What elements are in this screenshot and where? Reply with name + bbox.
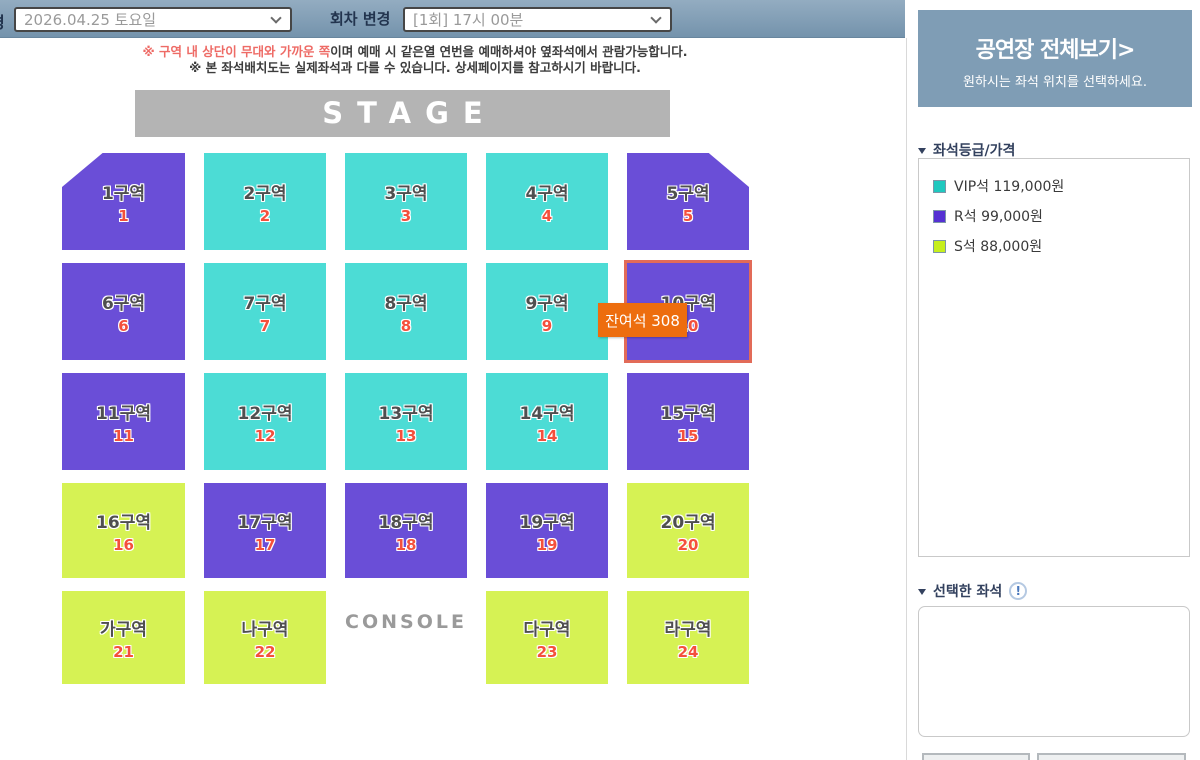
section-label: 나구역 bbox=[242, 615, 289, 640]
section-label: 라구역 bbox=[665, 615, 712, 640]
round-select-value: [1회] 17시 00분 bbox=[413, 9, 523, 30]
round-select[interactable]: [1회] 17시 00분 bbox=[403, 7, 672, 32]
seat-section-5[interactable]: 5구역5 bbox=[627, 153, 749, 250]
section-number: 5 bbox=[683, 207, 693, 225]
section-label: 가구역 bbox=[100, 615, 147, 640]
triangle-down-icon bbox=[918, 148, 926, 154]
venue-overview-subtitle: 원하시는 좌석 위치를 선택하세요. bbox=[918, 71, 1192, 90]
triangle-down-icon bbox=[918, 589, 926, 595]
section-label: 17구역 bbox=[238, 508, 293, 533]
bottom-button-left[interactable] bbox=[922, 753, 1030, 760]
seat-section-7[interactable]: 7구역7 bbox=[204, 263, 326, 360]
section-label: 5구역 bbox=[666, 179, 709, 204]
section-label: 14구역 bbox=[520, 399, 575, 424]
legend-text-r: R석 99,000원 bbox=[954, 206, 1043, 226]
seat-section-9[interactable]: 9구역9 bbox=[486, 263, 608, 360]
section-number: 2 bbox=[260, 207, 270, 225]
section-label: 16구역 bbox=[96, 508, 151, 533]
section-number: 18 bbox=[396, 536, 417, 554]
legend-item-vip: VIP석 119,000원 bbox=[933, 176, 1189, 196]
console-label: CONSOLE bbox=[345, 591, 467, 684]
seat-section-1[interactable]: 1구역1 bbox=[62, 153, 185, 250]
notice-line-1-highlight: ※ 구역 내 상단이 무대와 가까운 쪽 bbox=[143, 44, 331, 59]
chevron-down-icon bbox=[270, 12, 281, 23]
remaining-seats-tooltip: 잔여석 308 bbox=[598, 303, 687, 337]
section-number: 17 bbox=[255, 536, 276, 554]
section-label: 18구역 bbox=[379, 508, 434, 533]
chevron-down-icon bbox=[650, 12, 661, 23]
section-number: 9 bbox=[542, 317, 552, 335]
seat-section-23[interactable]: 다구역23 bbox=[486, 591, 608, 684]
section-number: 23 bbox=[537, 643, 558, 661]
section-label: 1구역 bbox=[102, 179, 145, 204]
section-label: 19구역 bbox=[520, 508, 575, 533]
legend-item-r: R석 99,000원 bbox=[933, 206, 1189, 226]
section-number: 14 bbox=[537, 427, 558, 445]
seat-section-14[interactable]: 14구역14 bbox=[486, 373, 608, 470]
legend-text-s: S석 88,000원 bbox=[954, 236, 1042, 256]
section-number: 7 bbox=[260, 317, 270, 335]
section-number: 19 bbox=[537, 536, 558, 554]
venue-overview-button[interactable]: 공연장 전체보기> 원하시는 좌석 위치를 선택하세요. bbox=[918, 10, 1192, 107]
selected-seats-header[interactable]: 선택한 좌석 ! bbox=[918, 581, 1027, 601]
notice-block: ※ 구역 내 상단이 무대와 가까운 쪽이며 예매 시 같은열 연번을 예매하셔… bbox=[0, 44, 830, 76]
seat-section-19[interactable]: 19구역19 bbox=[486, 483, 608, 578]
header-bar: 경 2026.04.25 토요일 회차 변경 [1회] 17시 00분 bbox=[0, 0, 905, 38]
section-number: 20 bbox=[678, 536, 699, 554]
seat-grid: CONSOLE 1구역12구역23구역34구역45구역56구역67구역78구역8… bbox=[62, 153, 749, 684]
section-label: 20구역 bbox=[661, 508, 716, 533]
section-label: 4구역 bbox=[525, 179, 568, 204]
date-select-value: 2026.04.25 토요일 bbox=[24, 9, 156, 30]
section-number: 12 bbox=[255, 427, 276, 445]
info-icon[interactable]: ! bbox=[1009, 582, 1027, 600]
section-number: 6 bbox=[118, 317, 128, 335]
seat-section-12[interactable]: 12구역12 bbox=[204, 373, 326, 470]
seat-section-16[interactable]: 16구역16 bbox=[62, 483, 185, 578]
seat-section-22[interactable]: 나구역22 bbox=[204, 591, 326, 684]
stage-banner: STAGE bbox=[135, 90, 670, 137]
legend-text-vip: VIP석 119,000원 bbox=[954, 176, 1064, 196]
selected-seats-box bbox=[918, 606, 1190, 737]
sidebar: 공연장 전체보기> 원하시는 좌석 위치를 선택하세요. 좌석등급/가격 VIP… bbox=[918, 0, 1192, 760]
section-label: 6구역 bbox=[102, 289, 145, 314]
section-label: 2구역 bbox=[243, 179, 286, 204]
seat-section-21[interactable]: 가구역21 bbox=[62, 591, 185, 684]
selected-seats-title: 선택한 좌석 bbox=[933, 581, 1002, 601]
section-number: 13 bbox=[396, 427, 417, 445]
section-number: 8 bbox=[401, 317, 411, 335]
seat-section-6[interactable]: 6구역6 bbox=[62, 263, 185, 360]
section-label: 8구역 bbox=[384, 289, 427, 314]
price-legend-box: VIP석 119,000원 R석 99,000원 S석 88,000원 bbox=[918, 158, 1190, 557]
seat-section-13[interactable]: 13구역13 bbox=[345, 373, 467, 470]
notice-line-2: ※ 본 좌석배치도는 실제좌석과 다를 수 있습니다. 상세페이지를 참고하시기… bbox=[0, 60, 830, 76]
section-number: 22 bbox=[255, 643, 276, 661]
seat-section-8[interactable]: 8구역8 bbox=[345, 263, 467, 360]
price-section-title: 좌석등급/가격 bbox=[933, 140, 1015, 160]
notice-line-1-rest: 이며 예매 시 같은열 연번을 예매하셔야 옆좌석에서 관람가능합니다. bbox=[330, 44, 687, 59]
section-label: 15구역 bbox=[661, 399, 716, 424]
section-number: 3 bbox=[401, 207, 411, 225]
seat-section-20[interactable]: 20구역20 bbox=[627, 483, 749, 578]
section-number: 11 bbox=[113, 427, 134, 445]
section-label: 7구역 bbox=[243, 289, 286, 314]
date-change-label-partial: 경 bbox=[0, 9, 10, 33]
section-label: 3구역 bbox=[384, 179, 427, 204]
seat-section-2[interactable]: 2구역2 bbox=[204, 153, 326, 250]
r-color-swatch bbox=[933, 210, 946, 223]
section-label: 13구역 bbox=[379, 399, 434, 424]
section-number: 1 bbox=[118, 207, 128, 225]
vertical-divider bbox=[906, 38, 907, 760]
seat-section-24[interactable]: 라구역24 bbox=[627, 591, 749, 684]
vip-color-swatch bbox=[933, 180, 946, 193]
section-number: 15 bbox=[678, 427, 699, 445]
legend-item-s: S석 88,000원 bbox=[933, 236, 1189, 256]
bottom-button-right[interactable] bbox=[1037, 753, 1186, 760]
round-change-label: 회차 변경 bbox=[330, 0, 390, 38]
venue-overview-title: 공연장 전체보기> bbox=[918, 32, 1192, 64]
seat-section-4[interactable]: 4구역4 bbox=[486, 153, 608, 250]
seat-section-18[interactable]: 18구역18 bbox=[345, 483, 467, 578]
price-section-header[interactable]: 좌석등급/가격 bbox=[918, 140, 1015, 160]
section-number: 21 bbox=[113, 643, 134, 661]
section-label: 12구역 bbox=[238, 399, 293, 424]
notice-line-1: ※ 구역 내 상단이 무대와 가까운 쪽이며 예매 시 같은열 연번을 예매하셔… bbox=[0, 44, 830, 60]
section-label: 9구역 bbox=[525, 289, 568, 314]
seat-section-3[interactable]: 3구역3 bbox=[345, 153, 467, 250]
section-number: 16 bbox=[113, 536, 134, 554]
date-select[interactable]: 2026.04.25 토요일 bbox=[14, 7, 292, 32]
section-number: 24 bbox=[678, 643, 699, 661]
section-label: 다구역 bbox=[524, 615, 571, 640]
seat-section-11[interactable]: 11구역11 bbox=[62, 373, 185, 470]
s-color-swatch bbox=[933, 240, 946, 253]
seat-section-17[interactable]: 17구역17 bbox=[204, 483, 326, 578]
seat-section-15[interactable]: 15구역15 bbox=[627, 373, 749, 470]
section-number: 4 bbox=[542, 207, 552, 225]
section-label: 11구역 bbox=[96, 399, 151, 424]
